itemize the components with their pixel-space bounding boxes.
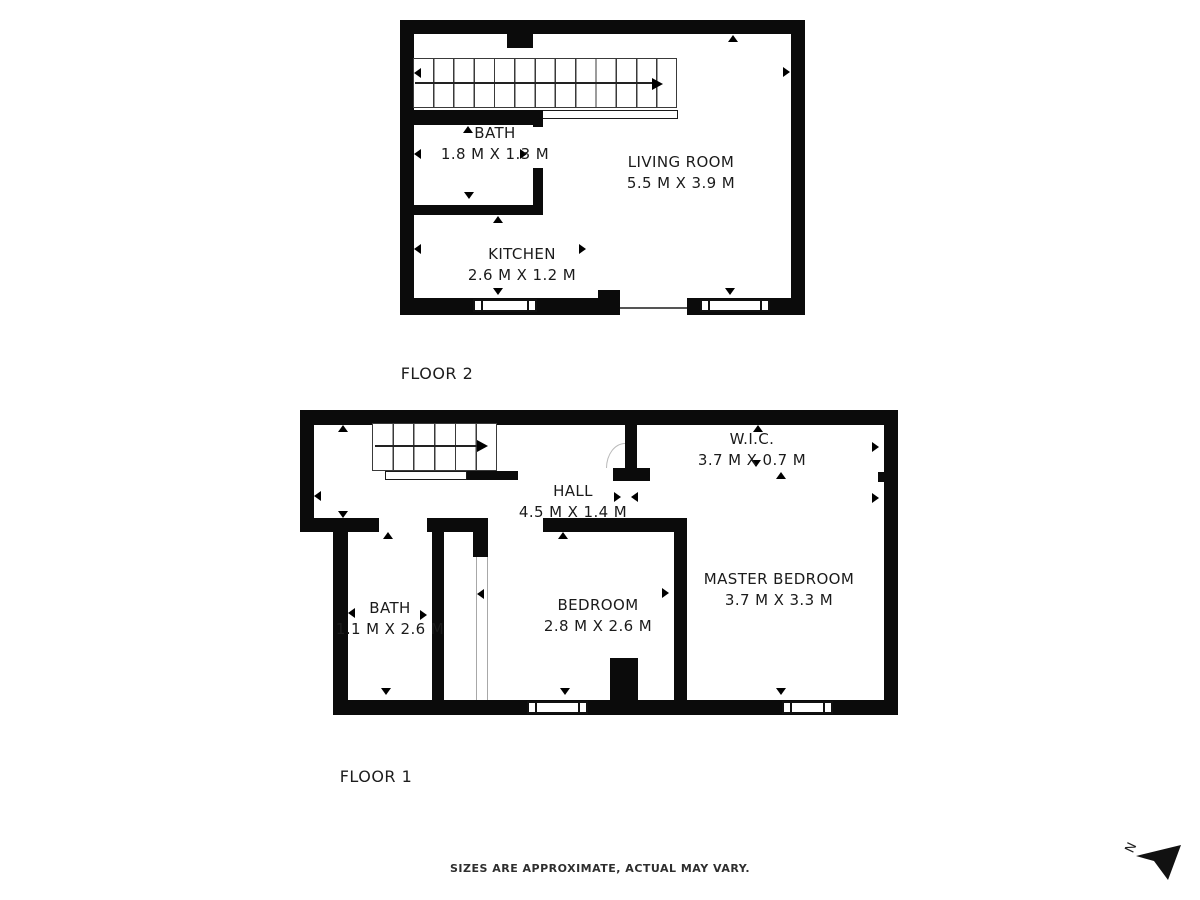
dimension-arrow [314, 491, 321, 501]
stair-direction-line [375, 445, 478, 447]
floor1-stair-wall [625, 410, 637, 468]
floor2-stair-landing [542, 110, 678, 119]
dimension-arrow [338, 511, 348, 518]
room-name: MASTER BEDROOM [704, 569, 854, 590]
north-compass-icon: N [1115, 828, 1190, 890]
floor1-bedroom-closet-block [610, 658, 638, 700]
dimension-arrow [872, 493, 879, 503]
floor2-top-wall-notch [507, 34, 533, 48]
floor1-bedroom-wall-right [674, 518, 687, 700]
compass-arrow-shape [1136, 845, 1181, 880]
room-dimensions: 3.7 M X 0.7 M [698, 450, 806, 471]
dimension-arrow [558, 532, 568, 539]
dimension-arrow [493, 216, 503, 223]
floor1-stair-landing-wall [467, 471, 518, 480]
room-name: LIVING ROOM [627, 152, 735, 173]
dimension-arrow [579, 244, 586, 254]
room-dimensions: 2.6 M X 1.2 M [468, 265, 576, 286]
floor2-entry-threshold [620, 307, 687, 309]
dimension-arrow [493, 288, 503, 295]
room-label-bedroom: BEDROOM 2.8 M X 2.6 M [544, 595, 652, 637]
room-name: W.I.C. [698, 429, 806, 450]
room-dimensions: 4.5 M X 1.4 M [519, 502, 627, 523]
floorplan-canvas: BATH 1.8 M X 1.3 M LIVING ROOM 5.5 M X 3… [0, 0, 1200, 900]
room-dimensions: 3.7 M X 3.3 M [704, 590, 854, 611]
stair-direction-arrow-icon [477, 440, 488, 452]
dimension-arrow [560, 688, 570, 695]
floor1-partition-line-right [487, 557, 488, 700]
room-name: HALL [519, 481, 627, 502]
stair-direction-line [415, 82, 653, 84]
floor2-title: FLOOR 2 [401, 364, 474, 383]
floor1-title: FLOOR 1 [340, 767, 413, 786]
floor1-stair-wall-cross [613, 468, 650, 481]
floor1-window-master [782, 701, 833, 714]
floor1-stair-landing [385, 471, 467, 480]
dimension-arrow [728, 35, 738, 42]
dimension-arrow [776, 472, 786, 479]
dimension-arrow [464, 192, 474, 199]
floor1-plan: HALL 4.5 M X 1.4 M W.I.C. 3.7 M X 0.7 M … [300, 410, 898, 715]
room-label-living-room: LIVING ROOM 5.5 M X 3.9 M [627, 152, 735, 194]
room-label-wic: W.I.C. 3.7 M X 0.7 M [698, 429, 806, 471]
floor2-window-living [700, 299, 770, 312]
dimension-arrow [725, 288, 735, 295]
room-label-kitchen: KITCHEN 2.6 M X 1.2 M [468, 244, 576, 286]
floor1-right-wall-notch [878, 472, 884, 482]
floor1-partition-line-left [476, 557, 477, 700]
floor2-window-kitchen [473, 299, 537, 312]
floor1-outer-wall-left-upper [300, 410, 314, 532]
floor2-outer-wall-right [791, 20, 805, 315]
room-dimensions: 1.1 M X 2.6 M [336, 619, 444, 640]
disclaimer-text: SIZES ARE APPROXIMATE, ACTUAL MAY VARY. [0, 862, 1200, 875]
dimension-arrow [383, 532, 393, 539]
room-name: BATH [441, 123, 549, 144]
room-dimensions: 2.8 M X 2.6 M [544, 616, 652, 637]
dimension-arrow [414, 149, 421, 159]
stair-direction-arrow-icon [652, 78, 663, 90]
room-label-hall: HALL 4.5 M X 1.4 M [519, 481, 627, 523]
dimension-arrow [381, 688, 391, 695]
dimension-arrow [872, 442, 879, 452]
dimension-arrow [414, 68, 421, 78]
dimension-arrow [783, 67, 790, 77]
floor2-outer-wall-left [400, 20, 414, 315]
floor1-partition-stub [473, 532, 488, 557]
dimension-arrow [477, 589, 484, 599]
floor1-window-bedroom [527, 701, 588, 714]
room-name: BATH [336, 598, 444, 619]
floor2-bath-wall-bottom [410, 205, 543, 215]
room-name: KITCHEN [468, 244, 576, 265]
floor1-outer-wall-right [884, 410, 898, 715]
room-label-bath-floor1: BATH 1.1 M X 2.6 M [336, 598, 444, 640]
room-name: BEDROOM [544, 595, 652, 616]
dimension-arrow [662, 588, 669, 598]
room-dimensions: 1.8 M X 1.3 M [441, 144, 549, 165]
door-swing-arc [606, 443, 625, 468]
dimension-arrow [338, 425, 348, 432]
floor2-outer-wall-top [400, 20, 805, 34]
dimension-arrow [776, 688, 786, 695]
compass-north-label: N [1123, 840, 1141, 855]
floor2-plan: BATH 1.8 M X 1.3 M LIVING ROOM 5.5 M X 3… [400, 20, 805, 315]
floor1-hall-wall-seg-a [348, 518, 379, 532]
floor2-entry-door-jamb [598, 290, 620, 300]
dimension-arrow [414, 244, 421, 254]
room-label-master-bedroom: MASTER BEDROOM 3.7 M X 3.3 M [704, 569, 854, 611]
room-label-bath-floor2: BATH 1.8 M X 1.3 M [441, 123, 549, 165]
room-dimensions: 5.5 M X 3.9 M [627, 173, 735, 194]
dimension-arrow [631, 492, 638, 502]
